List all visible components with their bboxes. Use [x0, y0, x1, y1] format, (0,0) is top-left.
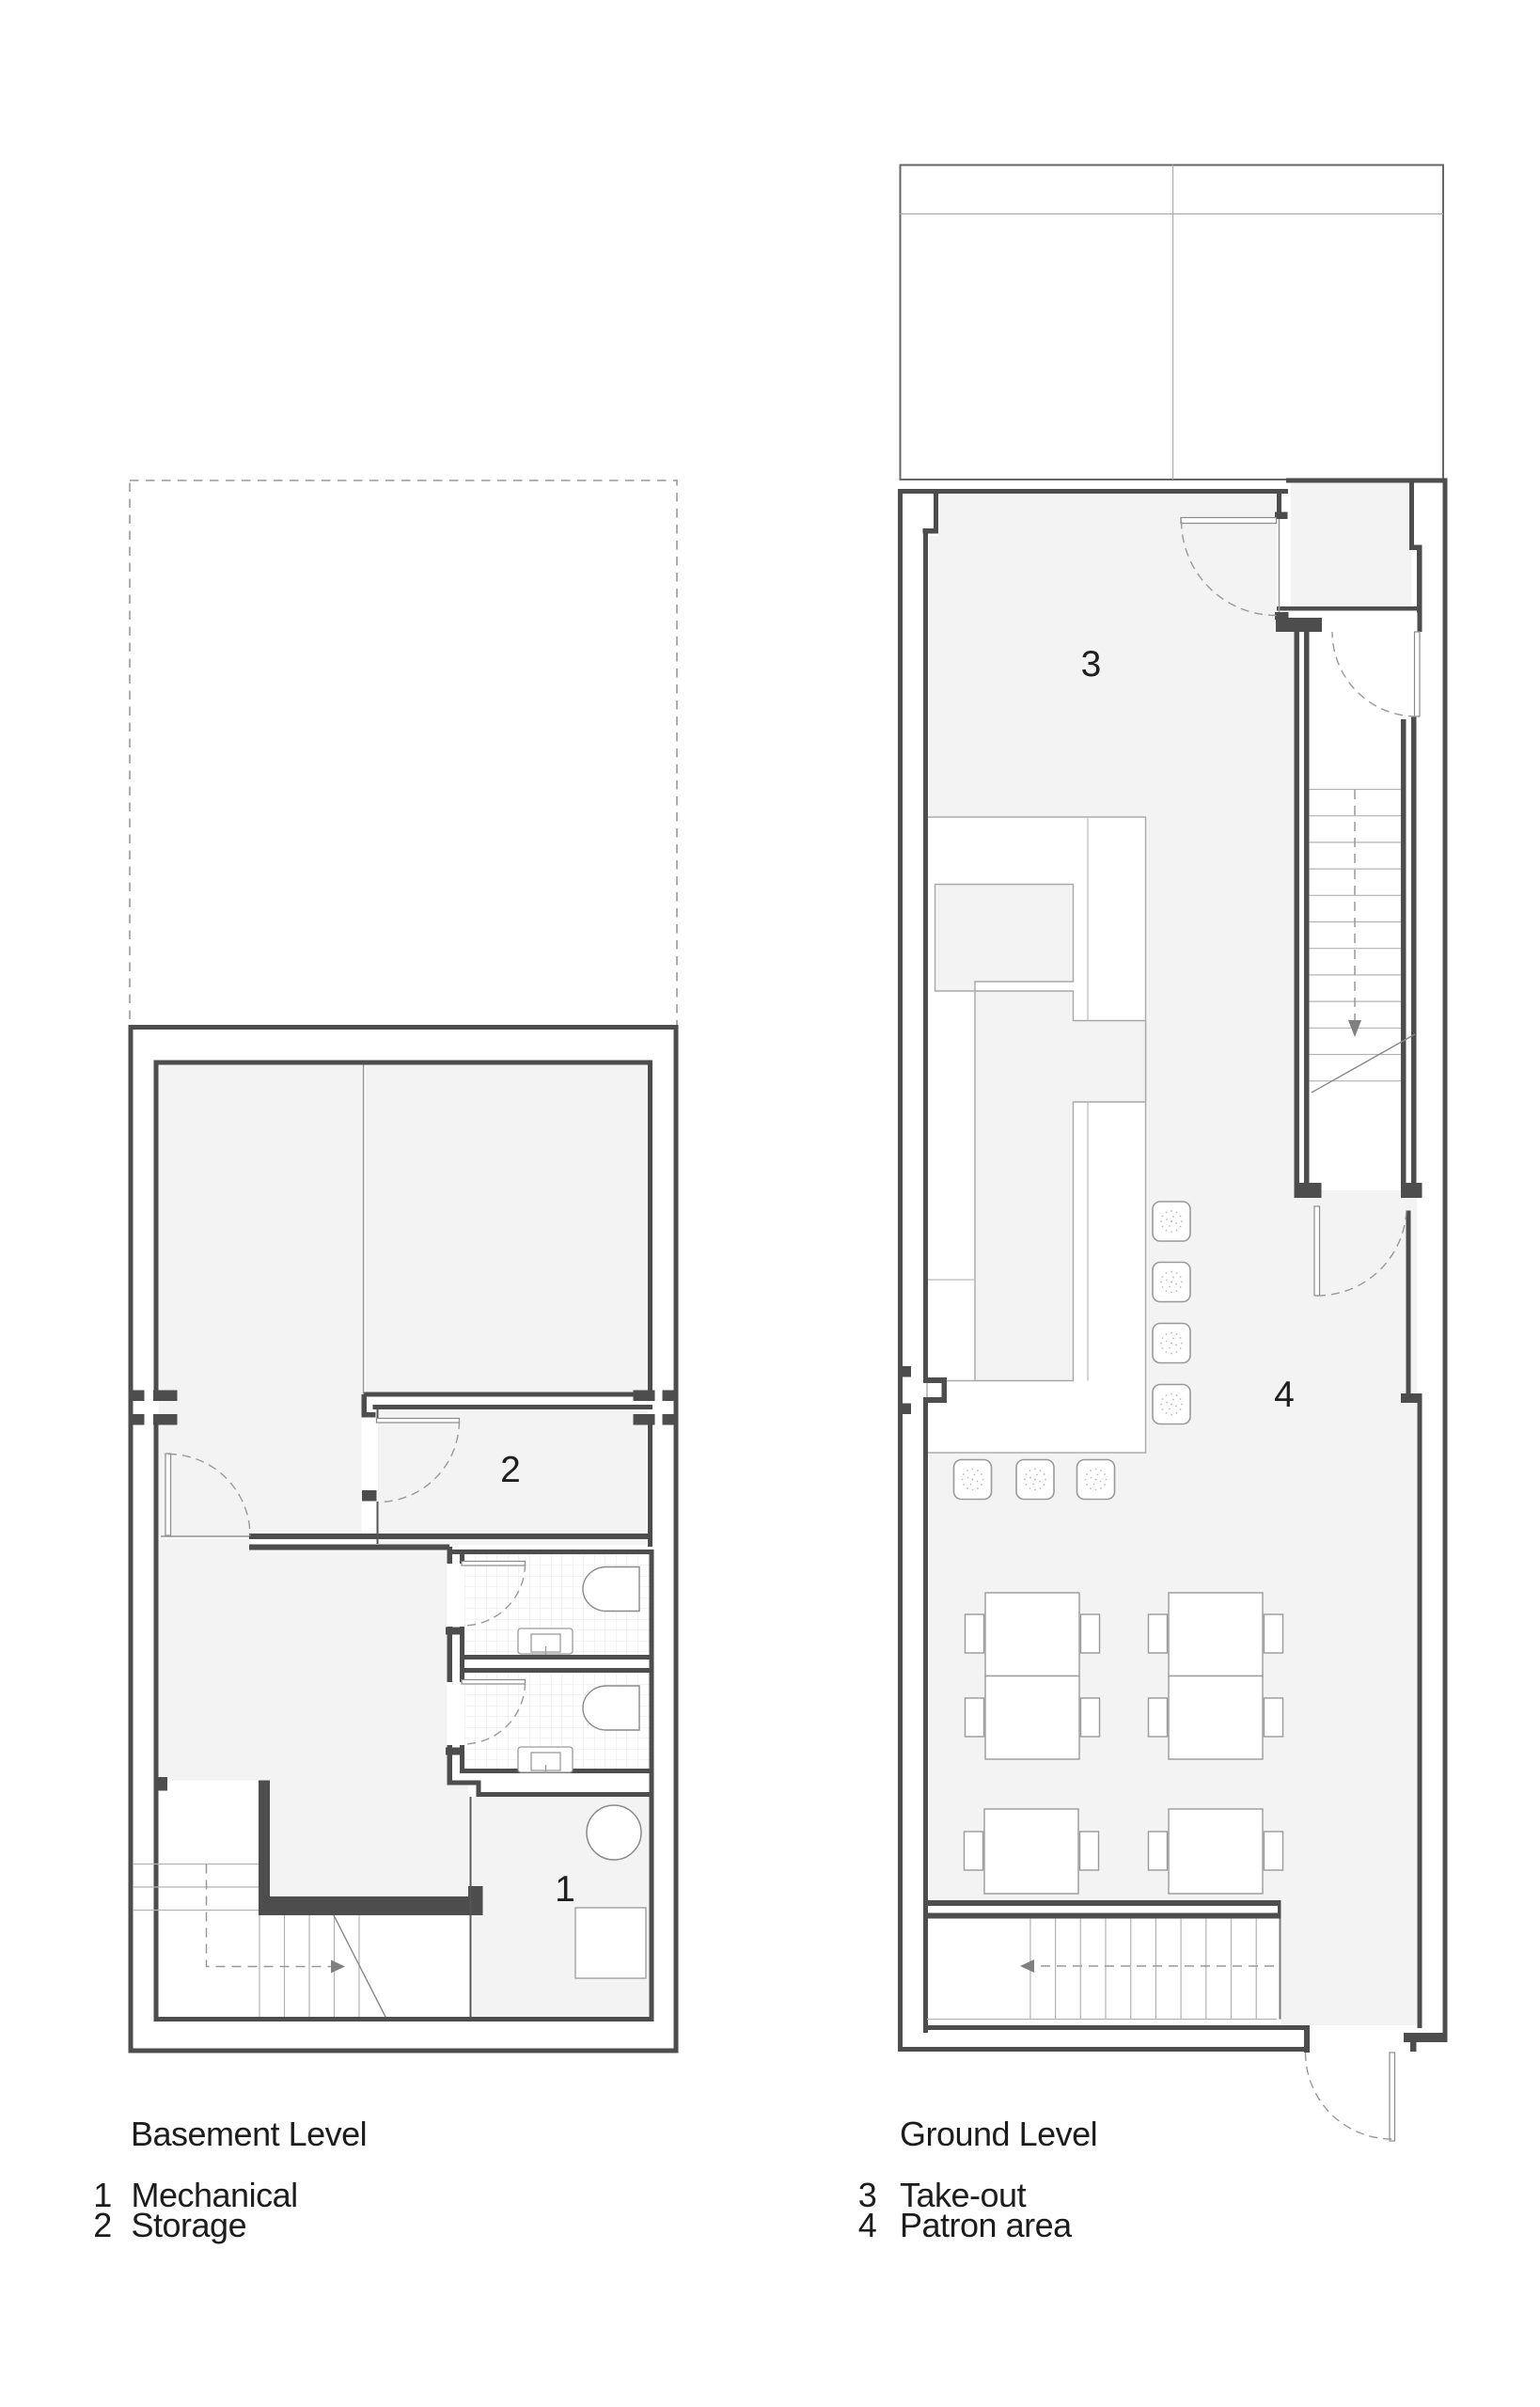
svg-text:3: 3	[1081, 644, 1102, 684]
svg-text:2: 2	[500, 1450, 521, 1490]
svg-text:Storage: Storage	[132, 2206, 247, 2244]
svg-text:Basement Level: Basement Level	[131, 2115, 367, 2153]
svg-text:4: 4	[1274, 1375, 1295, 1415]
svg-text:2: 2	[93, 2206, 112, 2244]
svg-text:1: 1	[555, 1869, 575, 1910]
svg-text:Patron area: Patron area	[900, 2206, 1073, 2244]
svg-text:4: 4	[858, 2206, 877, 2244]
svg-text:Ground Level: Ground Level	[900, 2115, 1097, 2153]
